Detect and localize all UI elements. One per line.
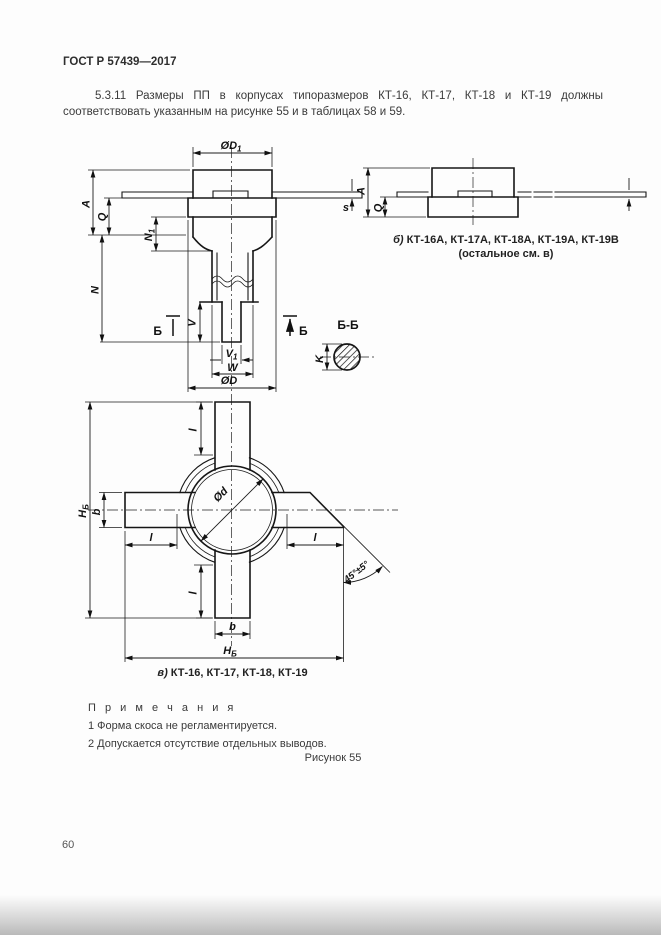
view-a-dimensions: ØD1 A Q N1 N V Б Б V1 <box>81 140 353 392</box>
svg-text:НБ: НБ <box>223 645 237 659</box>
section-letter-left: Б <box>153 324 162 338</box>
svg-text:V1: V1 <box>226 348 238 362</box>
view-b-outline <box>397 158 646 225</box>
caption-view-v: в) КТ-16, КТ-17, КТ-18, КТ-19 <box>110 666 355 680</box>
dim-label-D: ØD <box>221 375 238 387</box>
caption-view-v-text: КТ-16, КТ-17, КТ-18, КТ-19 <box>171 667 308 679</box>
section-letter-right: Б <box>299 324 308 338</box>
dim-label-l-bottom: l <box>188 591 200 595</box>
caption-view-v-prefix: в) <box>157 667 167 679</box>
dim-label-Q: Q <box>97 212 109 221</box>
dim-label-diag: Ød <box>211 485 230 504</box>
caption-view-b-prefix: б) <box>393 234 403 246</box>
caption-view-b: б) КТ-16А, КТ-17А, КТ-18А, КТ-19А, КТ-19… <box>356 233 656 261</box>
dim-label-l-left: l <box>149 532 153 544</box>
dim-label-A-b: A <box>356 187 368 196</box>
svg-text:N1: N1 <box>143 228 157 241</box>
view-v-outline <box>88 402 398 662</box>
dim-label-b-bottom: b <box>229 621 236 633</box>
svg-text:НБ: НБ <box>77 504 91 518</box>
dim-label-s: s <box>343 202 349 214</box>
figure-number-label: Рисунок 55 <box>63 752 603 764</box>
dim-label-b-left: b <box>91 508 103 515</box>
dim-label-Q-b: Q <box>373 203 385 212</box>
notes-title: П р и м е ч а н и я <box>88 699 327 717</box>
figure-55-drawing: ØD1 A Q N1 N V Б Б V1 <box>0 0 661 935</box>
dim-label-W: W <box>227 362 239 374</box>
note-item: 1 Форма скоса не регламентируется. <box>88 717 327 735</box>
dim-label-l-top: l <box>188 428 200 432</box>
dim-label-D1: ØD <box>221 140 238 152</box>
view-v-dimensions: 45°±5° Ød l l l l b <box>77 402 382 662</box>
dim-label-A: A <box>81 200 93 209</box>
dim-label-K: K <box>314 354 326 363</box>
scan-shadow <box>0 895 661 935</box>
view-a-outline <box>122 147 362 646</box>
caption-view-b-text: КТ-16А, КТ-17А, КТ-18А, КТ-19А, КТ-19В <box>407 234 619 246</box>
angle-label: 45°±5° <box>341 559 371 586</box>
dim-label-N: N <box>90 285 102 294</box>
dim-label-l-right: l <box>313 532 317 544</box>
note-item: 2 Допускается отсутствие отдельных вывод… <box>88 735 327 753</box>
section-bb: Б-Б K <box>314 318 375 370</box>
svg-text:ØD1: ØD1 <box>221 140 243 154</box>
section-bb-title: Б-Б <box>337 318 359 332</box>
page-number: 60 <box>62 839 74 851</box>
caption-view-b-note: (остальное см. в) <box>459 248 554 260</box>
gost-document-page: ГОСТ Р 57439—2017 5.3.11 Размеры ПП в ко… <box>0 0 661 935</box>
notes-block: П р и м е ч а н и я 1 Форма скоса не рег… <box>88 699 327 753</box>
